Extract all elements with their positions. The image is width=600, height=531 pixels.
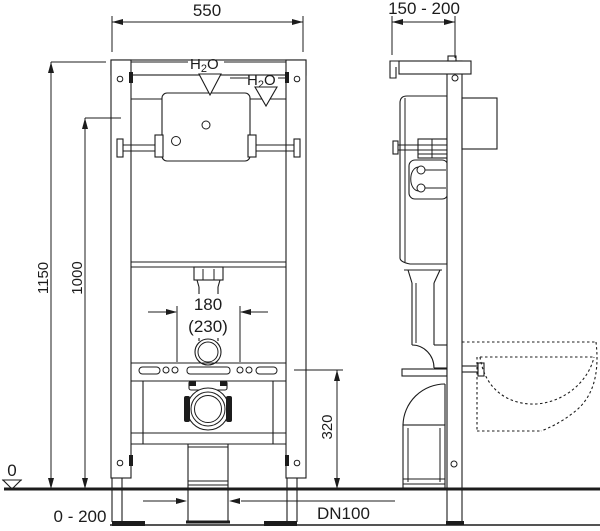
flush-pipe-front <box>184 267 232 365</box>
bolt-spacing-alt-label: (230) <box>188 317 228 336</box>
drain-elbow-side <box>403 384 445 488</box>
wall-bracket-box <box>462 98 497 149</box>
floor-level-label: 0 <box>7 461 16 480</box>
upper-fixing-height-label: 1000 <box>69 261 86 294</box>
side-view <box>390 56 597 525</box>
dimension-side-depth: 150 - 200 <box>388 0 460 58</box>
installation-frame-drawing: H2O H2O <box>0 0 600 531</box>
mounting-plate <box>131 363 286 381</box>
frame-height-label: 1150 <box>35 262 52 294</box>
cistern-front <box>155 93 256 161</box>
flush-pipe-side <box>402 270 447 376</box>
drain-socket-front <box>184 381 232 430</box>
water-level-triangle-icon <box>199 74 221 95</box>
front-width-label: 550 <box>193 1 221 20</box>
drain-diameter-label: DN100 <box>317 504 370 523</box>
dimension-front-width: 550 <box>112 1 303 52</box>
front-view: H2O H2O <box>111 56 306 526</box>
dimension-drain-diameter: DN100 <box>143 498 395 523</box>
side-depth-label: 150 - 200 <box>388 0 460 18</box>
flush-valve-side <box>409 160 448 199</box>
outlet-pipe-front <box>186 444 230 522</box>
frame-post-side <box>446 61 464 525</box>
water-level-upper-label: H2O <box>190 56 219 75</box>
drain-height-label: 320 <box>319 414 336 439</box>
toilet-bowl-outline <box>462 342 597 431</box>
bolt-spacing-label: 180 <box>194 295 222 314</box>
floor-zero-marker: 0 <box>2 461 22 489</box>
technical-drawing-page: H2O H2O <box>0 0 600 531</box>
leg-adjustment-label: 0 - 200 <box>54 507 107 526</box>
mounting-bolt-side <box>462 363 484 376</box>
water-level-triangle-icon <box>255 87 277 106</box>
